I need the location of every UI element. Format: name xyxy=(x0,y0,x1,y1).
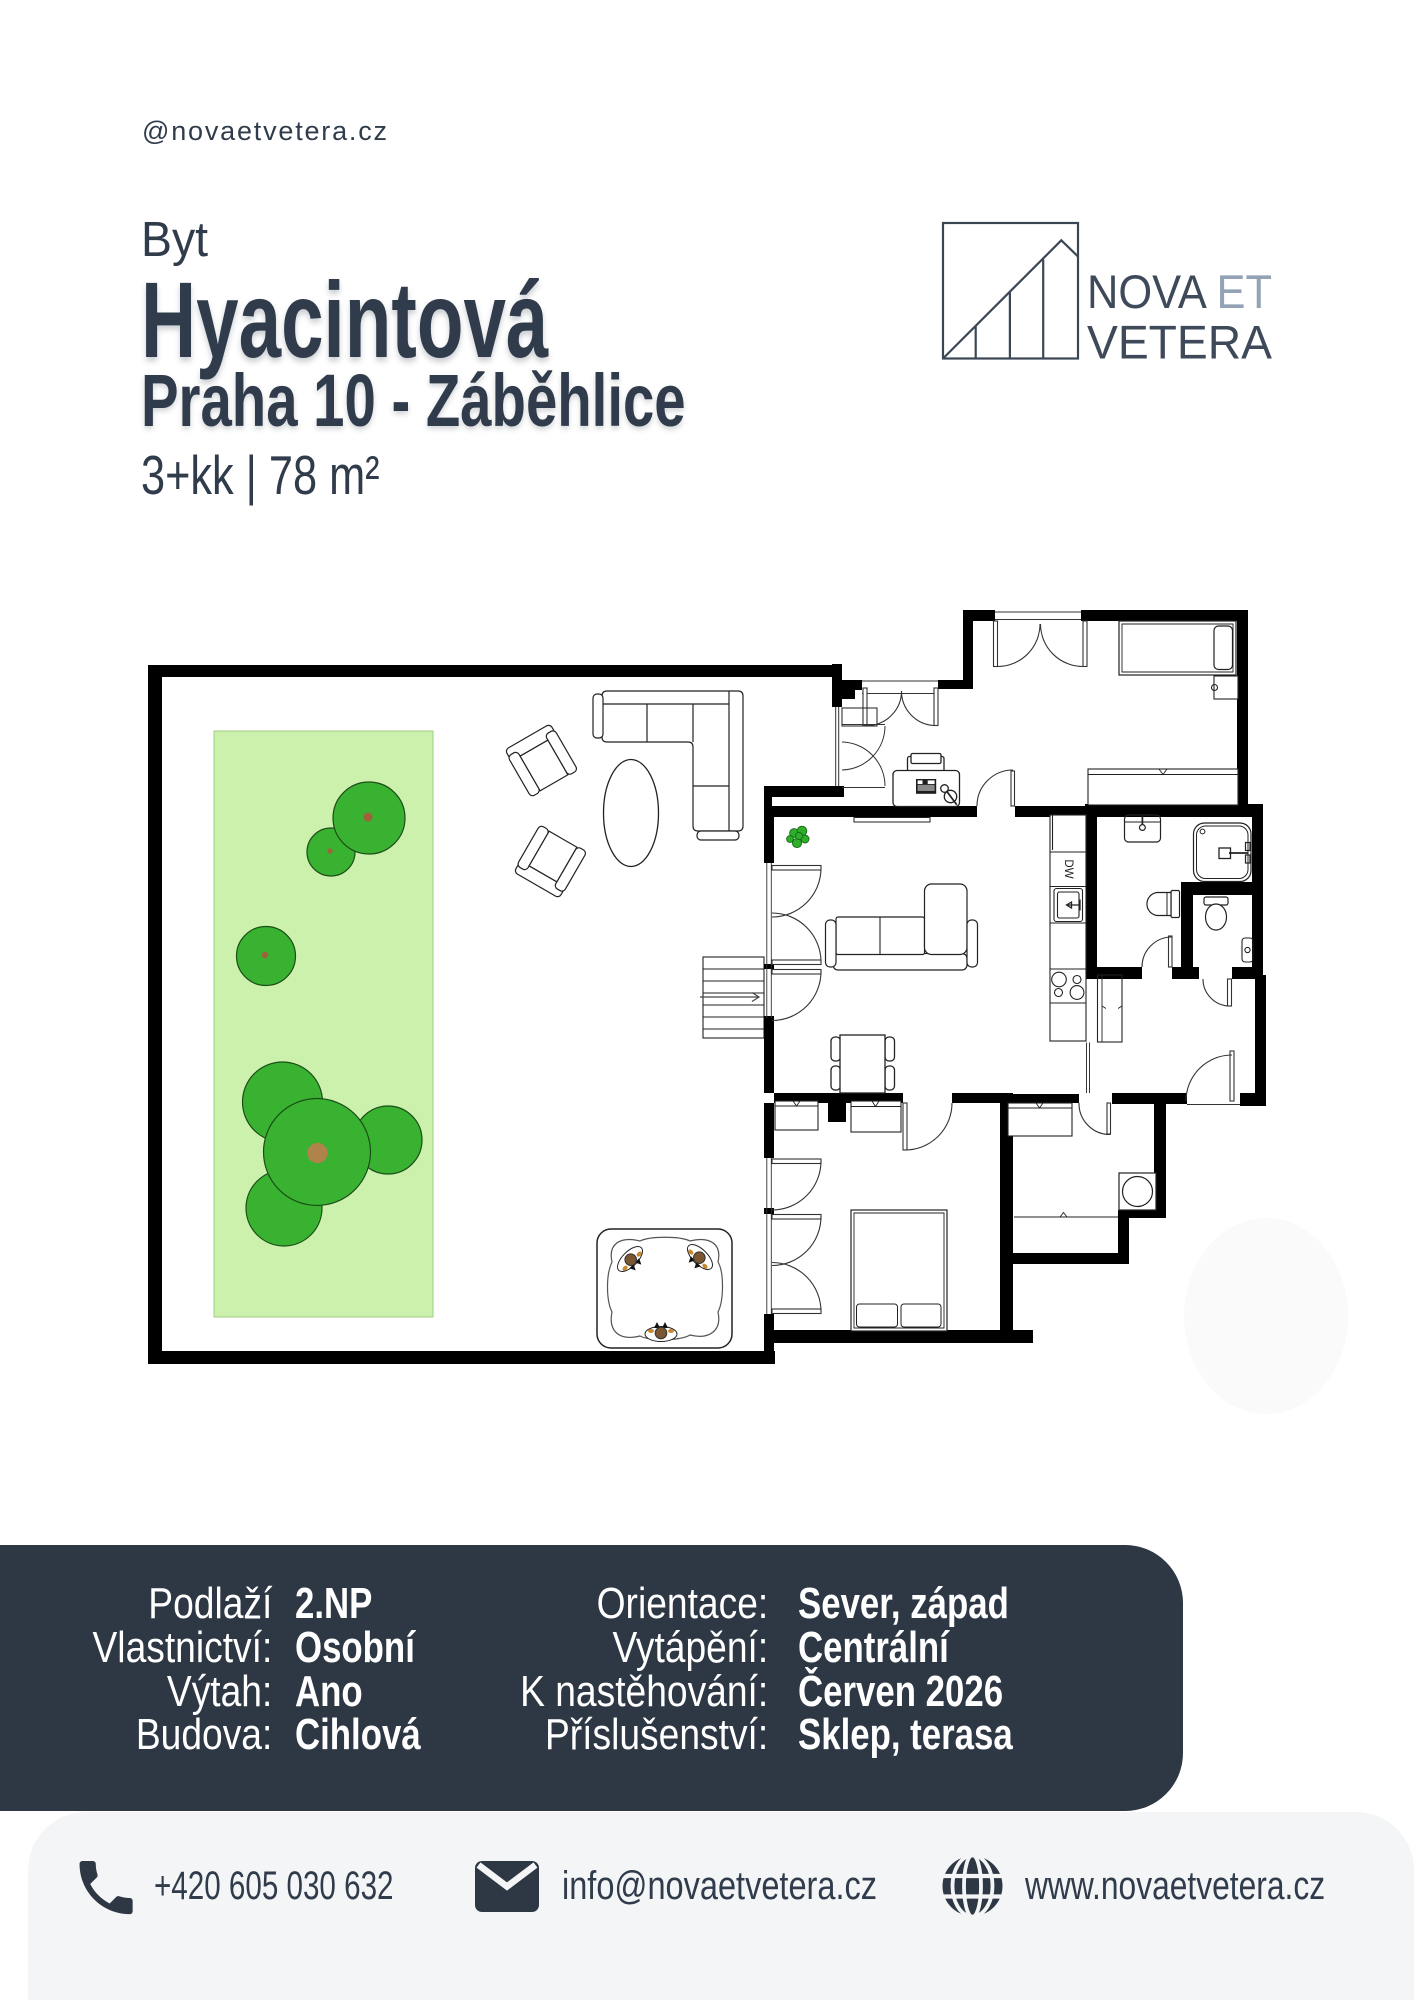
svg-text:DW: DW xyxy=(1062,859,1074,878)
